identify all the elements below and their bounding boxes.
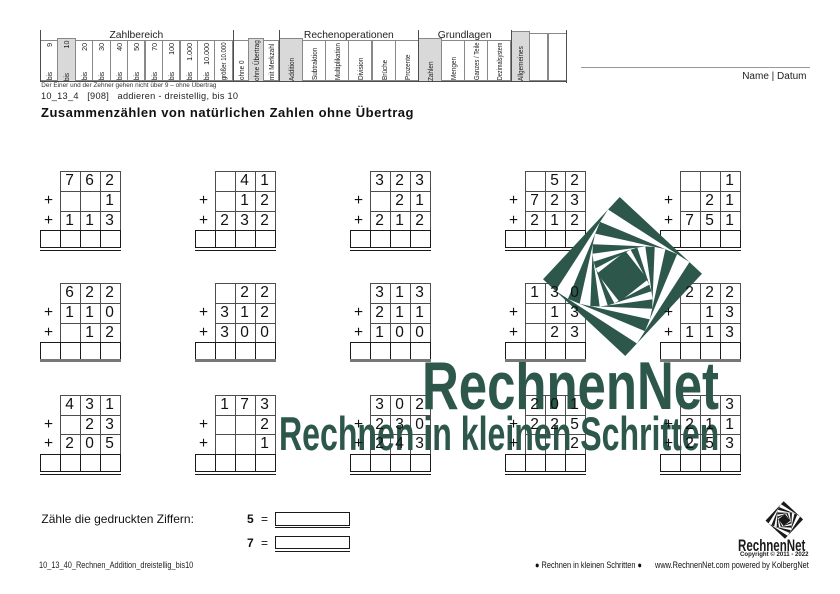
- svg-text:Rechnen in kleinen Schritten: Rechnen in kleinen Schritten: [279, 407, 719, 461]
